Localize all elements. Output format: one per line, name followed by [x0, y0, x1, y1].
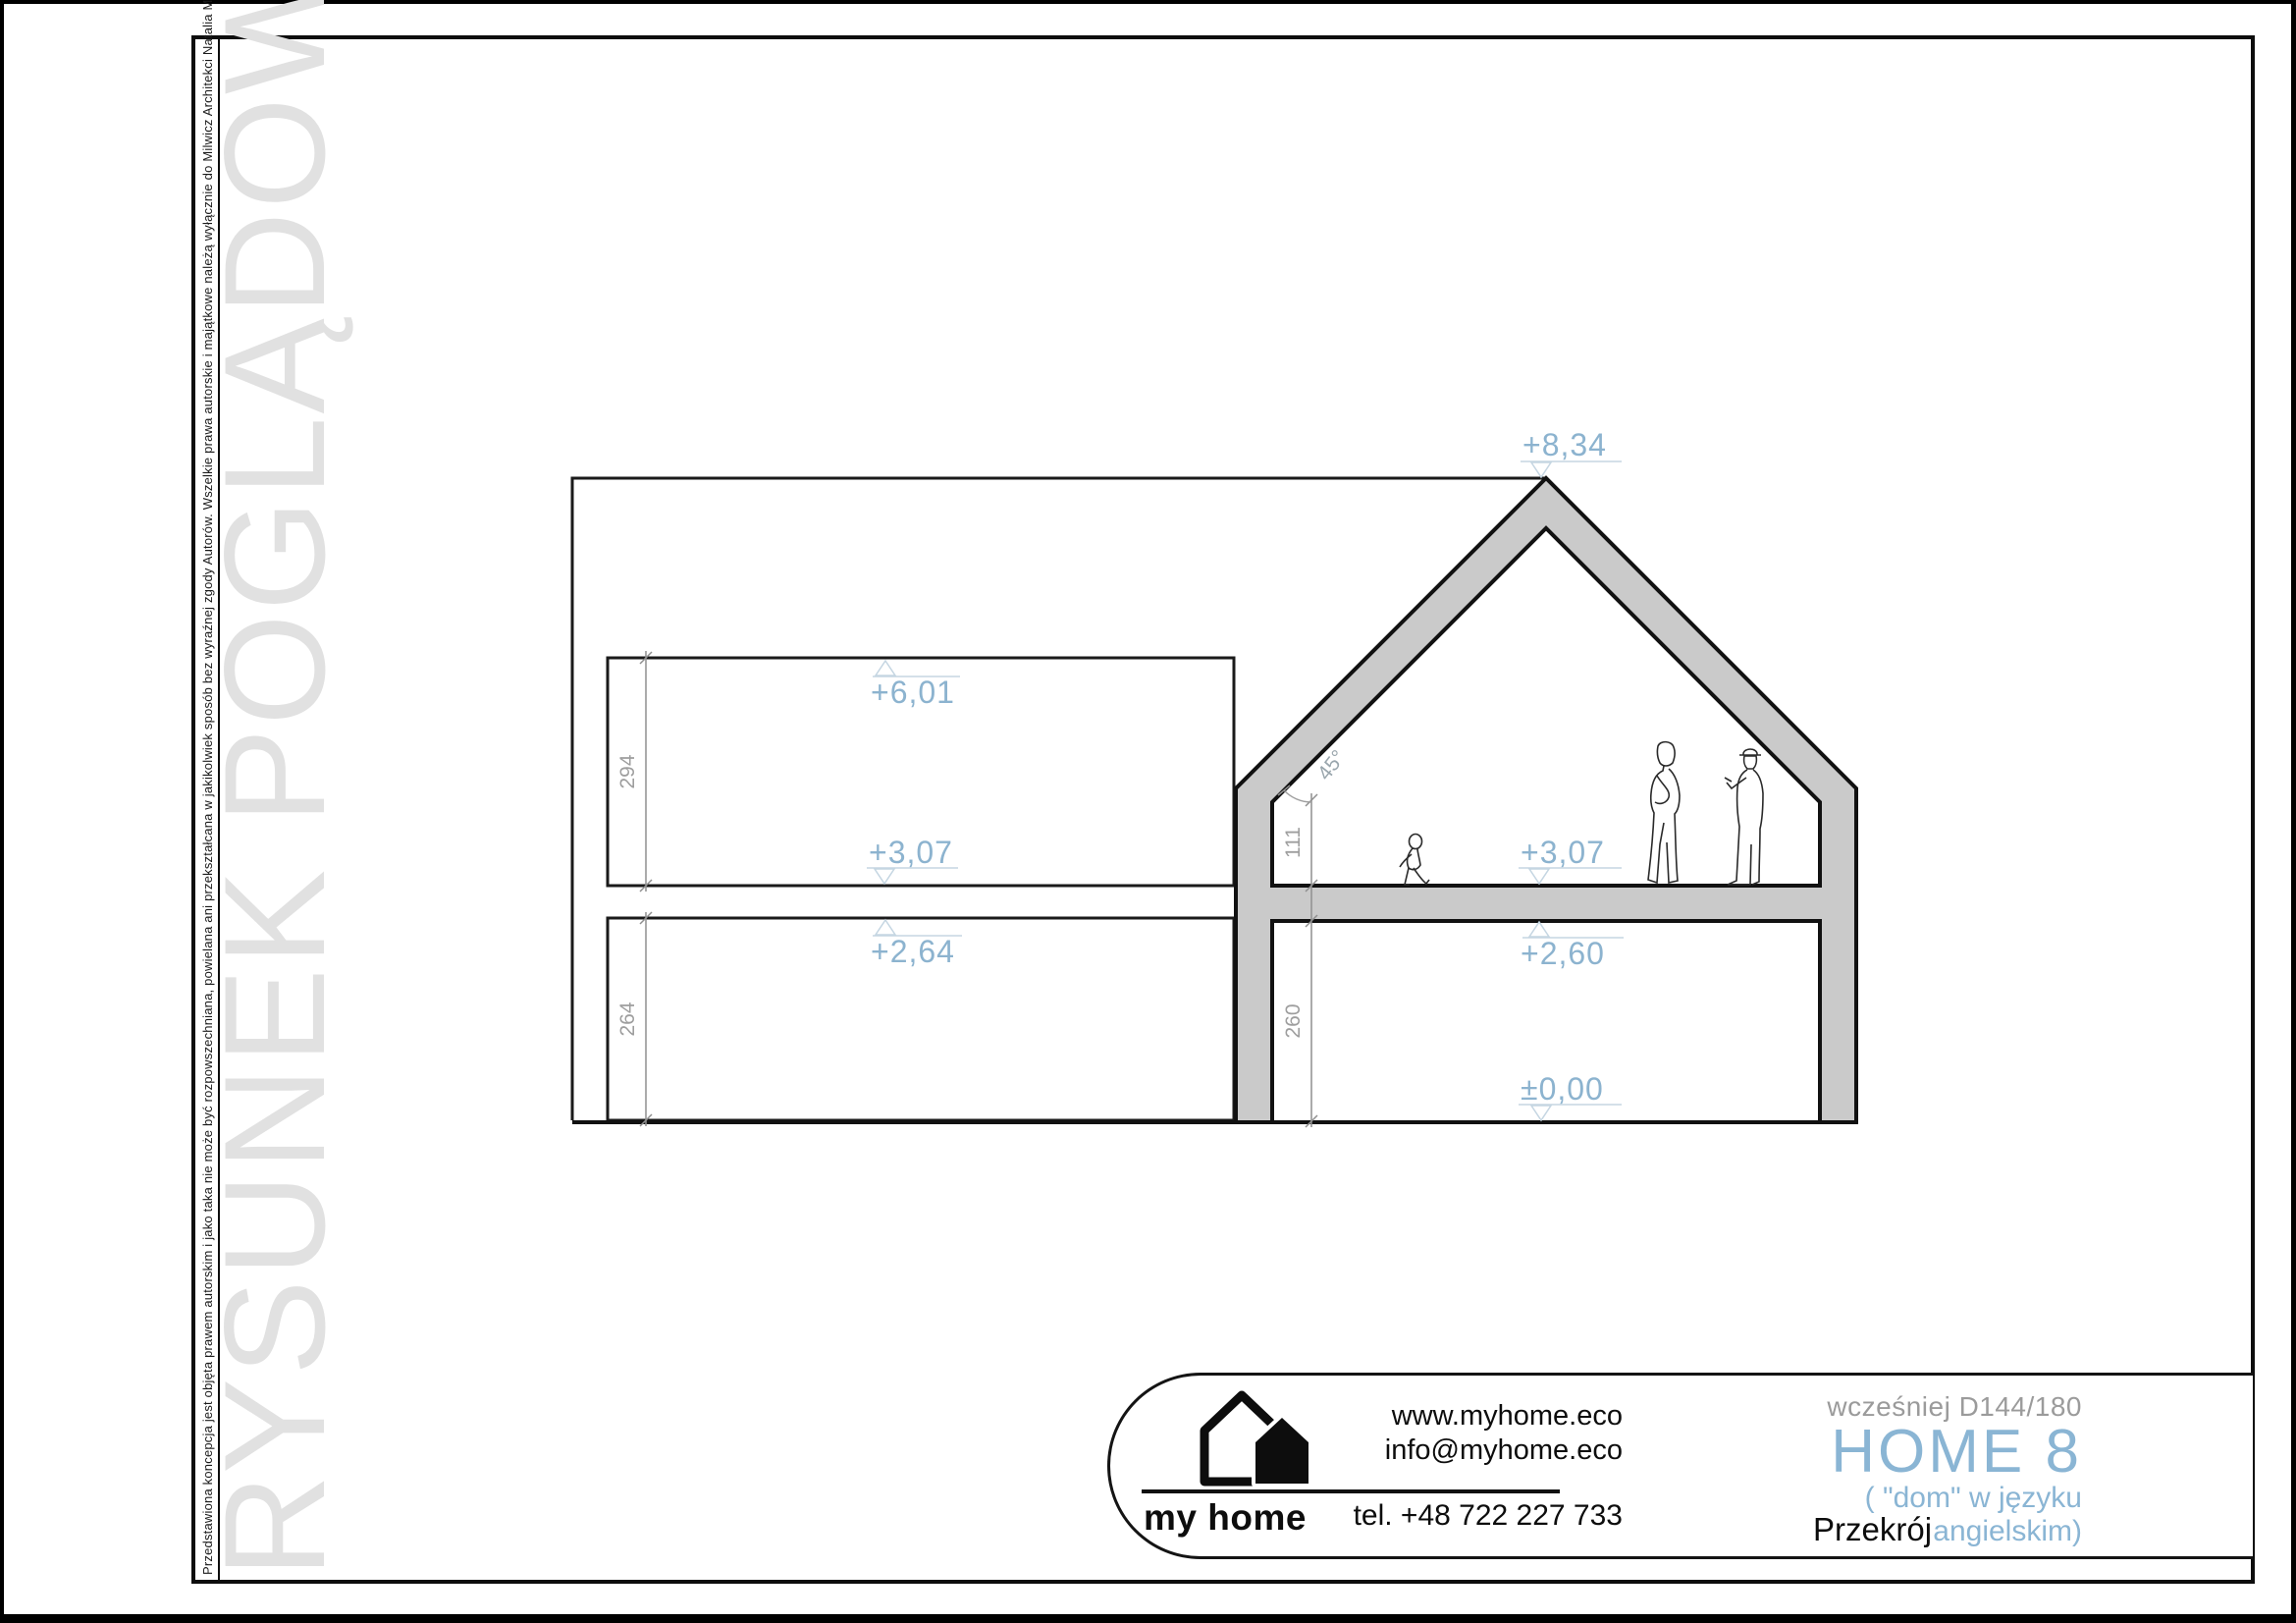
level-triangle-icon	[876, 661, 895, 676]
brand-name: my home	[1144, 1497, 1307, 1539]
drawing-sheet: { "page": { "copyright_notice": "Przedst…	[0, 0, 2296, 1623]
level-triangle-icon	[1529, 922, 1549, 937]
brand-divider	[1142, 1489, 1560, 1493]
figure-man	[1725, 749, 1763, 885]
level-label-ceiling-right: +2,60	[1521, 936, 1605, 971]
building-outline	[572, 478, 1546, 1120]
project-name: HOME 8	[1758, 1423, 2082, 1482]
level-marker-ridge: +8,34	[1521, 427, 1622, 477]
level-label-ground-floor: ±0,00	[1521, 1071, 1604, 1107]
title-block: my home www.myhome.eco info@myhome.eco t…	[1107, 1373, 2253, 1559]
level-triangle-icon	[1529, 869, 1549, 884]
level-marker-ceiling-right: +2,60	[1521, 922, 1624, 971]
dimension-chain-right: 111 260	[1282, 793, 1317, 1127]
brand-email: info@myhome.eco	[1346, 1434, 1623, 1468]
level-triangle-icon	[1531, 462, 1551, 477]
brand-logo-icon	[1191, 1385, 1338, 1488]
level-label-attic-floor-right: +3,07	[1521, 835, 1605, 870]
figure-child	[1400, 835, 1429, 886]
house-filled-core-icon	[1255, 1418, 1308, 1484]
level-marker-ceiling-left: +2,64	[871, 920, 962, 969]
brand-website: www.myhome.eco	[1346, 1399, 1623, 1434]
dimension-label-264: 264	[616, 1001, 639, 1036]
dimension-chain-left: 294 264	[616, 651, 652, 1126]
level-label-ridge: +8,34	[1522, 427, 1607, 462]
level-triangle-icon	[876, 920, 895, 935]
level-marker-attic-floor-right: +3,07	[1519, 835, 1622, 884]
brand-contacts: www.myhome.eco info@myhome.eco	[1346, 1399, 1623, 1468]
drawing-name: Przekrój	[1813, 1511, 1932, 1548]
level-label-attic-floor-left: +3,07	[869, 835, 953, 870]
dimension-label-260: 260	[1282, 1003, 1305, 1038]
level-marker-attic-floor-left: +3,07	[867, 835, 958, 884]
level-label-ceiling-left: +2,64	[871, 934, 955, 969]
level-marker-ground-floor: ±0,00	[1519, 1071, 1622, 1120]
roof-angle-arc	[1284, 790, 1311, 802]
figure-woman	[1648, 742, 1680, 883]
level-triangle-icon	[1531, 1106, 1551, 1120]
level-triangle-icon	[875, 869, 894, 884]
dimension-label-294: 294	[616, 754, 639, 788]
brand-phone: tel. +48 722 227 733	[1346, 1499, 1623, 1533]
dimension-label-111: 111	[1282, 827, 1305, 858]
level-marker-attic-top-left: +6,01	[871, 661, 960, 710]
level-label-attic-top-left: +6,01	[871, 675, 955, 710]
